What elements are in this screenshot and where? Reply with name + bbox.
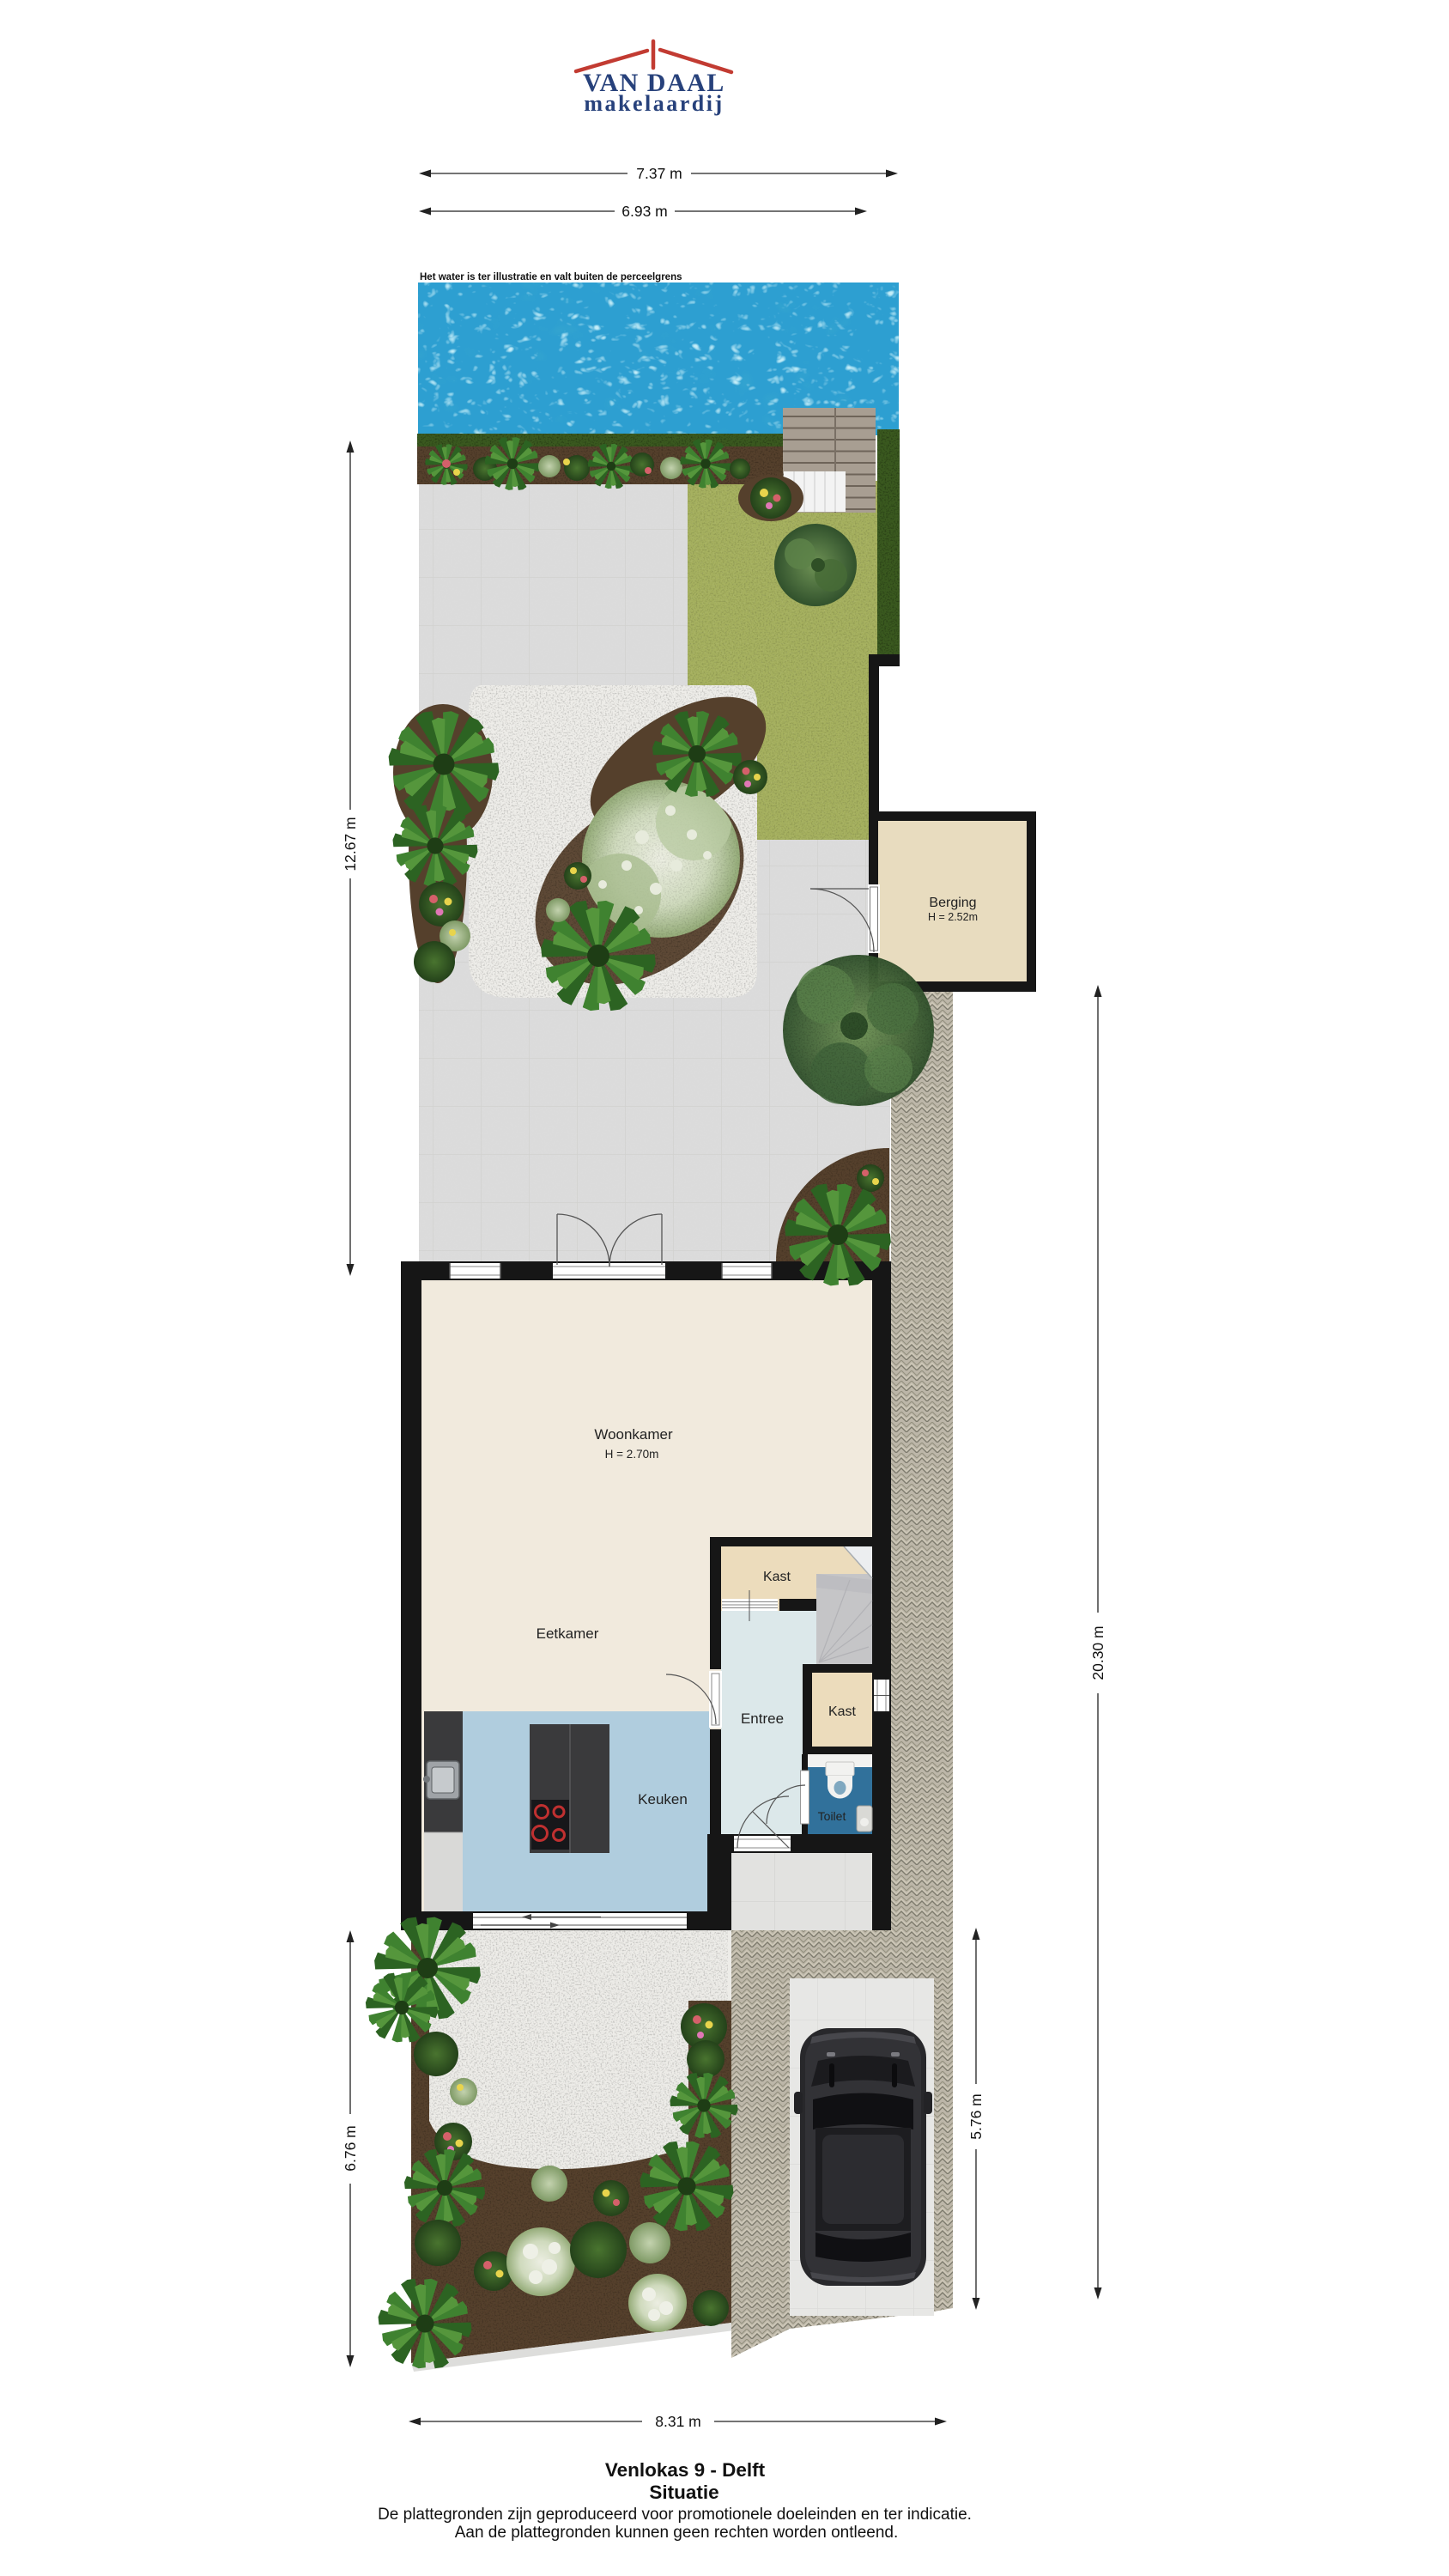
svg-text:De plattegronden zijn geproduc: De plattegronden zijn geproduceerd voor … (378, 2506, 972, 2524)
svg-text:Venlokas 9 - Delft: Venlokas 9 - Delft (605, 2459, 766, 2481)
svg-text:8.31 m: 8.31 m (655, 2413, 701, 2430)
svg-text:Het water is ter illustratie e: Het water is ter illustratie en valt bui… (420, 272, 682, 283)
svg-text:Kast: Kast (828, 1704, 857, 1719)
svg-text:Keuken: Keuken (638, 1791, 688, 1807)
svg-text:Situatie: Situatie (649, 2482, 718, 2503)
svg-text:Eetkamer: Eetkamer (537, 1625, 599, 1642)
svg-text:H = 2.52m: H = 2.52m (928, 911, 978, 923)
svg-text:Woonkamer: Woonkamer (594, 1426, 673, 1443)
svg-text:H = 2.70m: H = 2.70m (605, 1448, 659, 1461)
svg-text:6.76 m: 6.76 m (342, 2125, 359, 2172)
svg-text:Entree: Entree (741, 1710, 784, 1727)
svg-text:Aan de plattegronden kunnen ge: Aan de plattegronden kunnen geen rechten… (455, 2524, 899, 2542)
svg-text:12.67 m: 12.67 m (342, 817, 359, 871)
svg-text:Berging: Berging (929, 896, 976, 910)
svg-text:5.76 m: 5.76 m (967, 2093, 985, 2140)
svg-text:6.93 m: 6.93 m (621, 203, 668, 220)
svg-text:Kast: Kast (763, 1570, 791, 1584)
svg-text:Toilet: Toilet (818, 1809, 846, 1823)
svg-text:20.30 m: 20.30 m (1089, 1625, 1106, 1680)
svg-text:7.37 m: 7.37 m (636, 165, 682, 182)
svg-text:makelaardij: makelaardij (584, 91, 724, 116)
